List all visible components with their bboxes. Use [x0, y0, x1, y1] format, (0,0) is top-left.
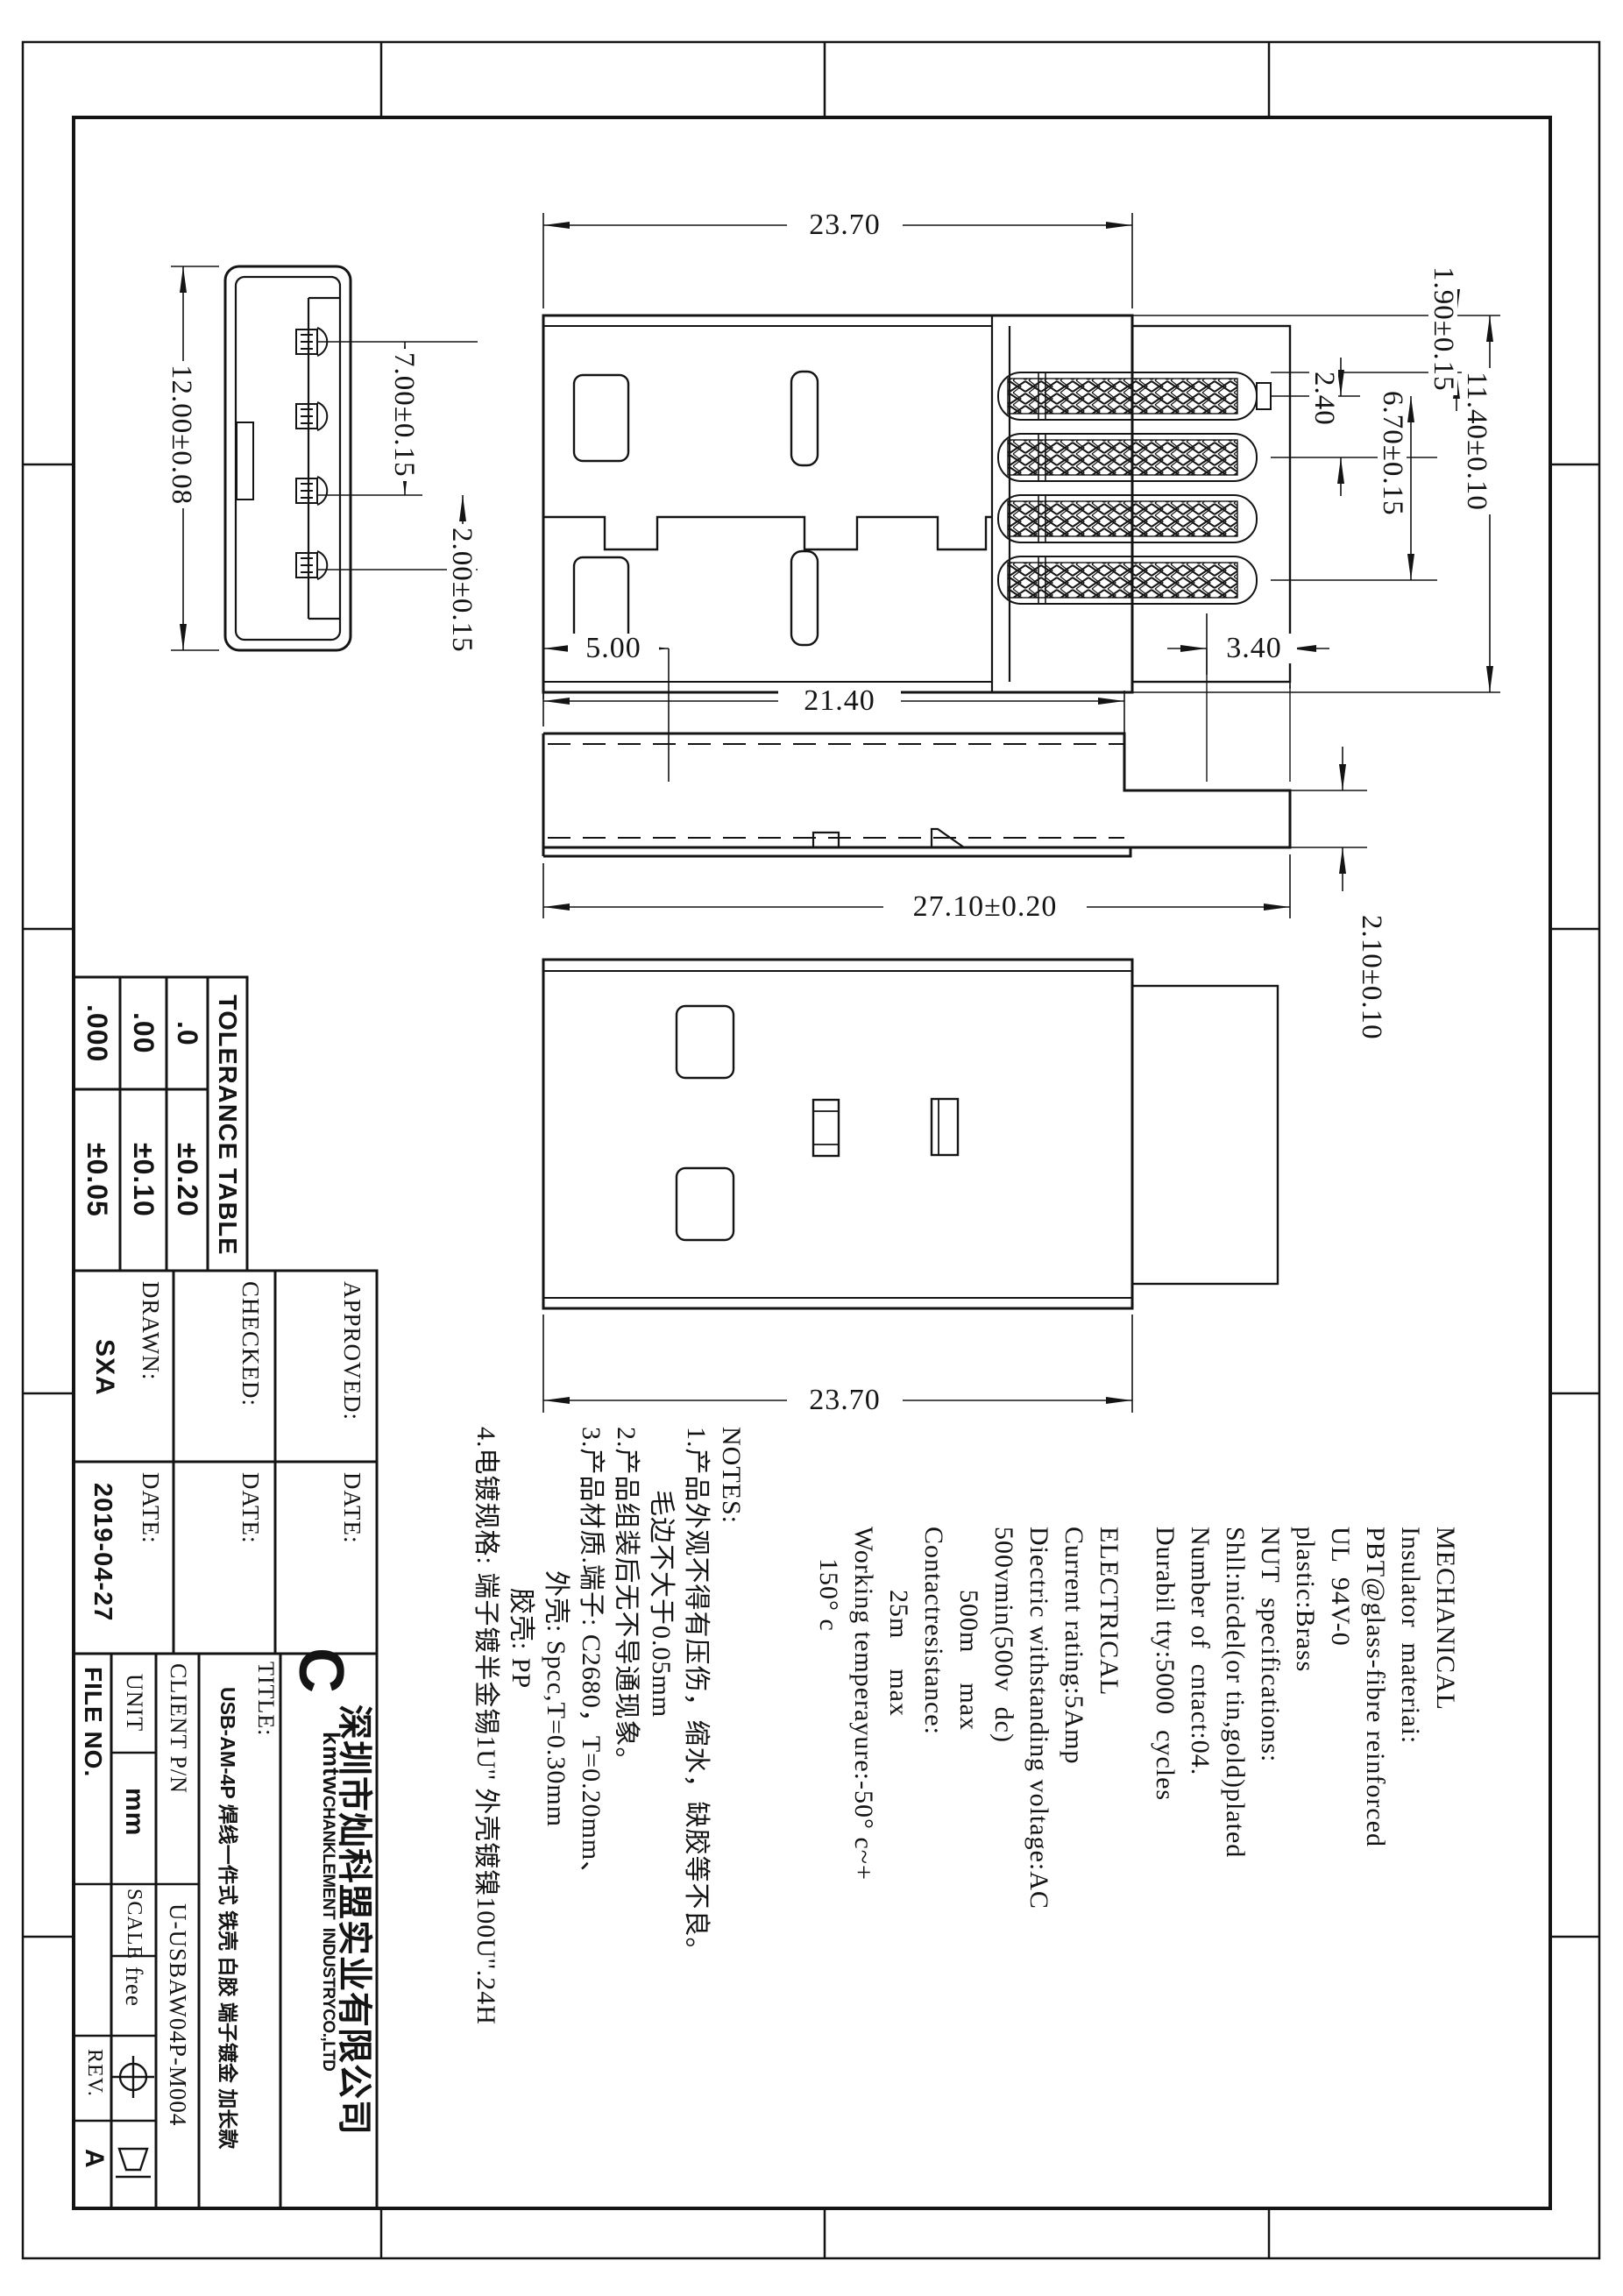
mechanical-line-3: UL 94V-0 — [1327, 1527, 1353, 1647]
electrical-line-7: Working temperayure:-50° c~+ — [850, 1527, 876, 1881]
drawn-date-label: DATE: — [138, 1472, 162, 1544]
company-logo-initial: C — [289, 1648, 352, 1694]
drawn-label: DRAWN: — [138, 1281, 162, 1380]
tolerance-row-1-value: ±0.10 — [130, 1089, 158, 1271]
checked-date-label: DATE: — [238, 1472, 262, 1544]
bottom-view — [543, 960, 1278, 1308]
mechanical-line-5: NUT specifications: — [1257, 1527, 1283, 1762]
dim-boot-height: 2.10±0.10 — [1357, 911, 1386, 1044]
side-view — [543, 733, 1290, 856]
mechanical-line-1: Insulator materiai: — [1397, 1527, 1423, 1744]
dim-pin-pitch: 2.40 — [1309, 368, 1338, 429]
dim-total-length: 27.10±0.20 — [883, 892, 1087, 922]
notes-line-3: 2.产品组装后无不导通现象。 — [613, 1427, 639, 1775]
drawn-value: SXA — [91, 1339, 117, 1396]
datum-target-icon — [112, 2056, 154, 2098]
dim-pin-span: 6.70±0.15 — [1378, 387, 1407, 520]
approved-date-label: DATE: — [340, 1472, 364, 1544]
client-pn-label: CLIENT P/N — [167, 1663, 189, 1794]
checked-label: CHECKED: — [238, 1281, 262, 1407]
tolerance-row-0-label: .0 — [174, 977, 202, 1089]
client-pn-value: U-USBAW04P-M004 — [166, 1903, 189, 2126]
electrical-line-2: Diectric withstanding voltage:AC — [1025, 1527, 1052, 1910]
title-value: USB-AM-4P 焊线一件式 铁壳 白胶 端子镀金 加长款 — [217, 1687, 237, 2149]
notes-line-7: 4.电镀规格: 端子镀半金锡1U'' 外壳镀镍100U''.24H — [472, 1427, 499, 2025]
scale-value: free — [122, 1966, 145, 2007]
approved-label: APPROVED: — [340, 1281, 364, 1421]
electrical-line-8: 150° c — [815, 1558, 841, 1632]
notes-line-2: 毛边不大于0.05mm — [648, 1490, 674, 1718]
dim-bottom-length: 23.70 — [787, 1385, 903, 1415]
mechanical-line-4: plastic:Brass — [1292, 1527, 1318, 1672]
tolerance-row-2-value: ±0.05 — [83, 1089, 111, 1271]
drawing-sheet: 23.70 5.00 3.40 21.40 27.10±0.20 23.70 1… — [0, 0, 1623, 2296]
front-view — [225, 266, 351, 650]
top-view-dims — [543, 213, 1500, 782]
dim-shell-length: 21.40 — [778, 686, 901, 716]
mechanical-heading: MECHANICAL — [1432, 1527, 1458, 1711]
electrical-line-4: 500m max — [955, 1590, 982, 1731]
file-no-label: FILE NO. — [81, 1667, 105, 1777]
title-label: TITLE: — [254, 1662, 277, 1736]
dim-boot-width: 3.40 — [1211, 634, 1297, 663]
projection-angle-icon — [116, 2149, 151, 2177]
electrical-line-6: 25m max — [885, 1590, 911, 1717]
sheet-borders — [23, 42, 1599, 2258]
dim-front-height: 12.00±0.08 — [167, 361, 195, 508]
unit-value: mm — [121, 1788, 147, 1836]
tolerance-table-title: TOLERANCE TABLE — [214, 989, 239, 1262]
mechanical-line-8: Durabil tty:5000 cycles — [1152, 1527, 1178, 1801]
notes-line-4: 3.产品材质.端子: C2680，T=0.20mm、 — [578, 1427, 604, 1888]
notes-line-6: 胶壳: PP — [507, 1588, 534, 1689]
crimp-terminals — [998, 372, 1271, 604]
notes-line-5: 外壳: Spcc,T=0.30mm — [542, 1570, 569, 1827]
notes-heading: NOTES: — [718, 1427, 744, 1524]
tolerance-row-0-value: ±0.20 — [174, 1089, 202, 1271]
mechanical-line-7: Number of cntact:04. — [1187, 1527, 1213, 1775]
side-view-dims — [543, 691, 1367, 918]
drawn-date-value: 2019-04-27 — [89, 1483, 115, 1621]
rev-label: REV. — [84, 2049, 105, 2097]
company-cn: 深圳市灿科盟实业有限公司 — [337, 1704, 372, 2136]
projection-symbols — [112, 2056, 154, 2177]
scale-label: SCALE — [124, 1889, 145, 1959]
dim-hole-offset: 5.00 — [568, 634, 659, 663]
dim-front-pin-pitch: 2.00±0.15 — [447, 524, 476, 656]
notes-line-1: 1.产品外观不得有压伤，缩水，缺胶等不良。 — [683, 1427, 709, 1965]
tolerance-row-1-label: .00 — [130, 977, 158, 1089]
front-view-dims — [171, 266, 478, 650]
dim-front-pin-span: 7.00±0.15 — [389, 349, 418, 481]
mechanical-line-2: PBT@glass-fibre reinforced — [1362, 1527, 1388, 1847]
electrical-line-1: Current rating:5Amp — [1060, 1527, 1087, 1764]
tolerance-row-2-label: .000 — [83, 977, 111, 1089]
electrical-heading: ELECTRICAL — [1095, 1527, 1122, 1696]
electrical-line-3: 500vmin(500v dc) — [990, 1527, 1017, 1743]
unit-label: UNIT — [123, 1674, 145, 1732]
rev-value: A — [81, 2149, 107, 2169]
electrical-line-5: Contactresistance: — [920, 1527, 946, 1735]
dim-pin-offset: 1.90±0.15 — [1428, 263, 1457, 395]
dim-top-length: 23.70 — [787, 210, 903, 240]
drawing-linework — [0, 0, 1623, 2296]
mechanical-line-6: Shll:nicdel(or tin,gold)plated — [1222, 1527, 1248, 1858]
dim-top-width: 11.40±0.10 — [1462, 368, 1491, 514]
